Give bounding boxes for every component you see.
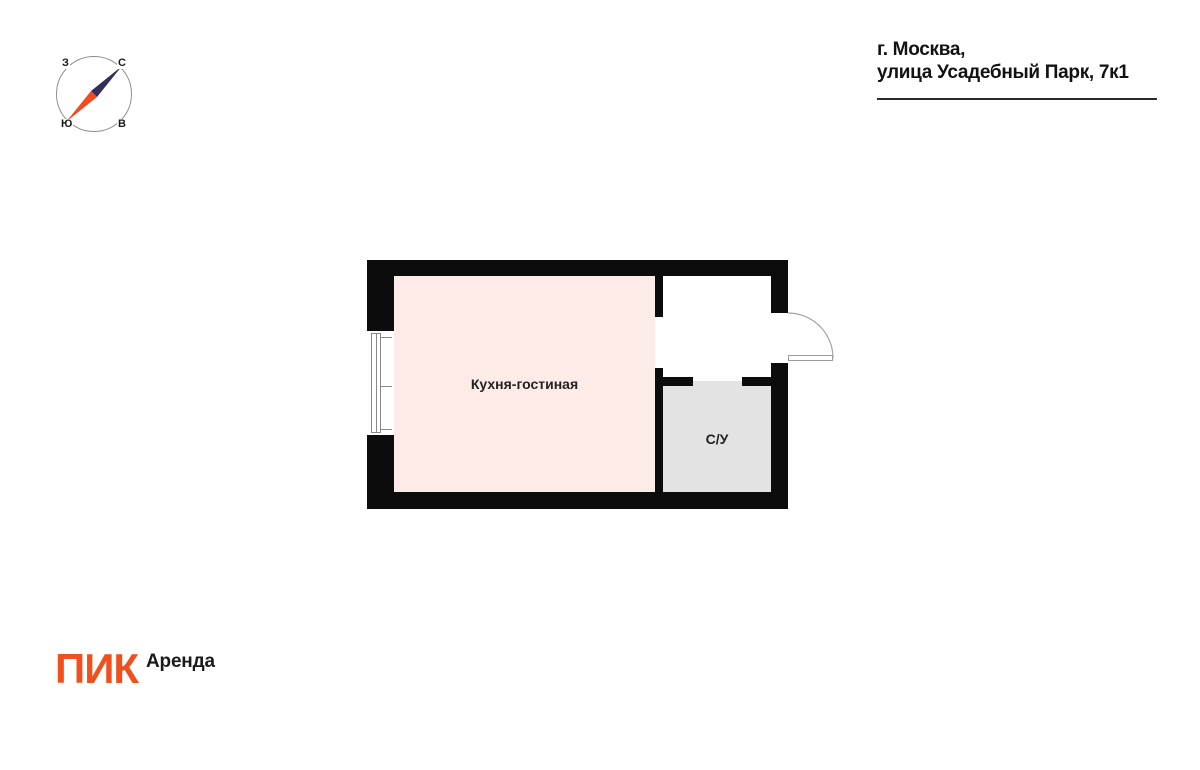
wall-bathroom-right bbox=[742, 377, 771, 386]
wall-partition-lower bbox=[655, 368, 663, 492]
address-city: г. Москва, bbox=[877, 38, 1157, 61]
brand-logo: ПИК Аренда bbox=[55, 649, 215, 689]
compass-needle-north-half bbox=[91, 66, 122, 97]
compass-label-north: С bbox=[117, 58, 127, 69]
entry-door-opening bbox=[771, 313, 788, 363]
entry-door-swing-arc bbox=[787, 313, 834, 360]
bathroom-doorway-floor bbox=[693, 381, 742, 386]
wall-bathroom-left bbox=[655, 377, 693, 386]
wall-partition-upper bbox=[655, 276, 663, 317]
window-tick bbox=[380, 429, 392, 430]
wall-east-lower bbox=[771, 363, 788, 509]
window-icon bbox=[367, 331, 394, 435]
address-street: улица Усадебный Парк, 7к1 bbox=[877, 61, 1157, 84]
room-bathroom: С/У bbox=[663, 386, 771, 492]
room-kitchen-living-label: Кухня-гостиная bbox=[471, 376, 578, 392]
floor-plan: Кухня-гостиная С/У bbox=[367, 260, 788, 509]
wall-west-upper bbox=[367, 260, 394, 331]
room-bathroom-label: С/У bbox=[706, 431, 729, 447]
wall-north bbox=[367, 260, 788, 276]
compass-rose: З С Ю В bbox=[56, 56, 132, 132]
address-block: г. Москва, улица Усадебный Парк, 7к1 bbox=[877, 38, 1157, 100]
entry-door-leaf bbox=[788, 355, 833, 361]
window-tick bbox=[380, 386, 392, 387]
wall-west-lower bbox=[367, 435, 394, 509]
room-kitchen-living: Кухня-гостиная bbox=[394, 276, 655, 492]
floor-plan-page: З С Ю В г. Москва, улица Усадебный Парк,… bbox=[0, 0, 1200, 770]
wall-east-upper bbox=[771, 260, 788, 313]
brand-logo-product: Аренда bbox=[146, 652, 215, 672]
window-mullion bbox=[376, 333, 377, 433]
room-hallway bbox=[663, 276, 771, 377]
wall-south bbox=[367, 492, 788, 509]
window-tick bbox=[380, 337, 392, 338]
address-divider bbox=[877, 98, 1157, 100]
compass-label-south: Ю bbox=[60, 119, 73, 130]
brand-logo-pik: ПИК bbox=[55, 649, 138, 689]
compass-label-east: В bbox=[117, 119, 127, 130]
compass-label-west: З bbox=[61, 58, 70, 69]
